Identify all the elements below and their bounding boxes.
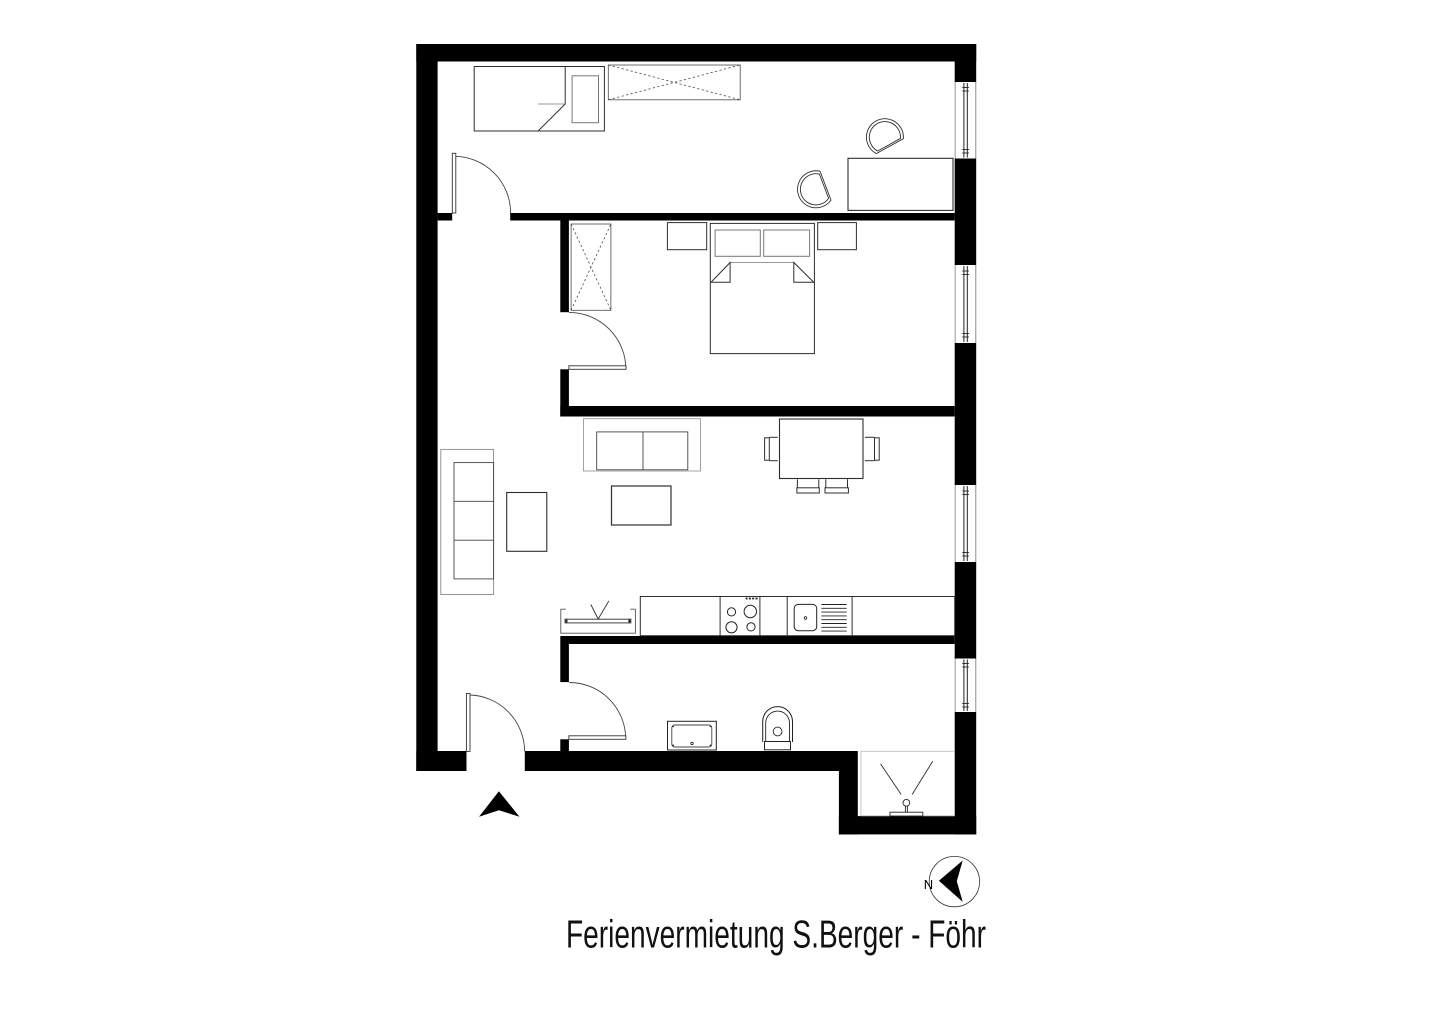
svg-text:Ferienvermietung S.Berger - Fö: Ferienvermietung S.Berger - Föhr [566,914,986,957]
svg-text:N: N [924,877,933,892]
